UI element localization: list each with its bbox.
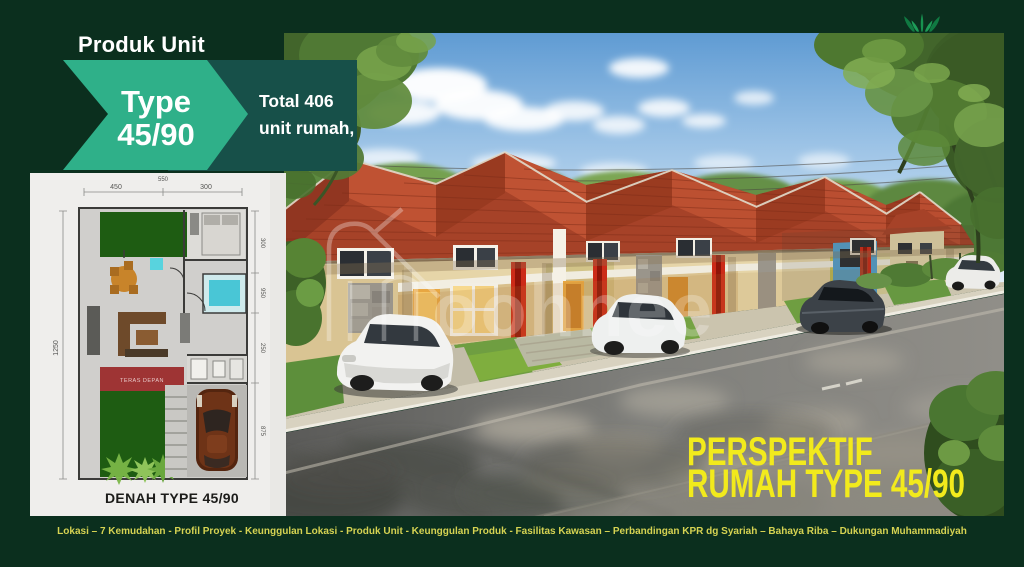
svg-text:DENAH TYPE 45/90: DENAH TYPE 45/90 (105, 490, 239, 506)
svg-text:300: 300 (259, 238, 265, 249)
svg-text:875: 875 (259, 426, 265, 437)
svg-text:300: 300 (200, 184, 212, 191)
svg-text:550: 550 (158, 177, 169, 183)
svg-text:450: 450 (110, 184, 122, 191)
svg-text:TERAS DEPAN: TERAS DEPAN (120, 378, 164, 384)
svg-text:250: 250 (259, 343, 265, 354)
svg-text:oohnee: oohnee (432, 268, 714, 353)
svg-text:1250: 1250 (53, 340, 60, 356)
svg-text:950: 950 (259, 288, 265, 299)
